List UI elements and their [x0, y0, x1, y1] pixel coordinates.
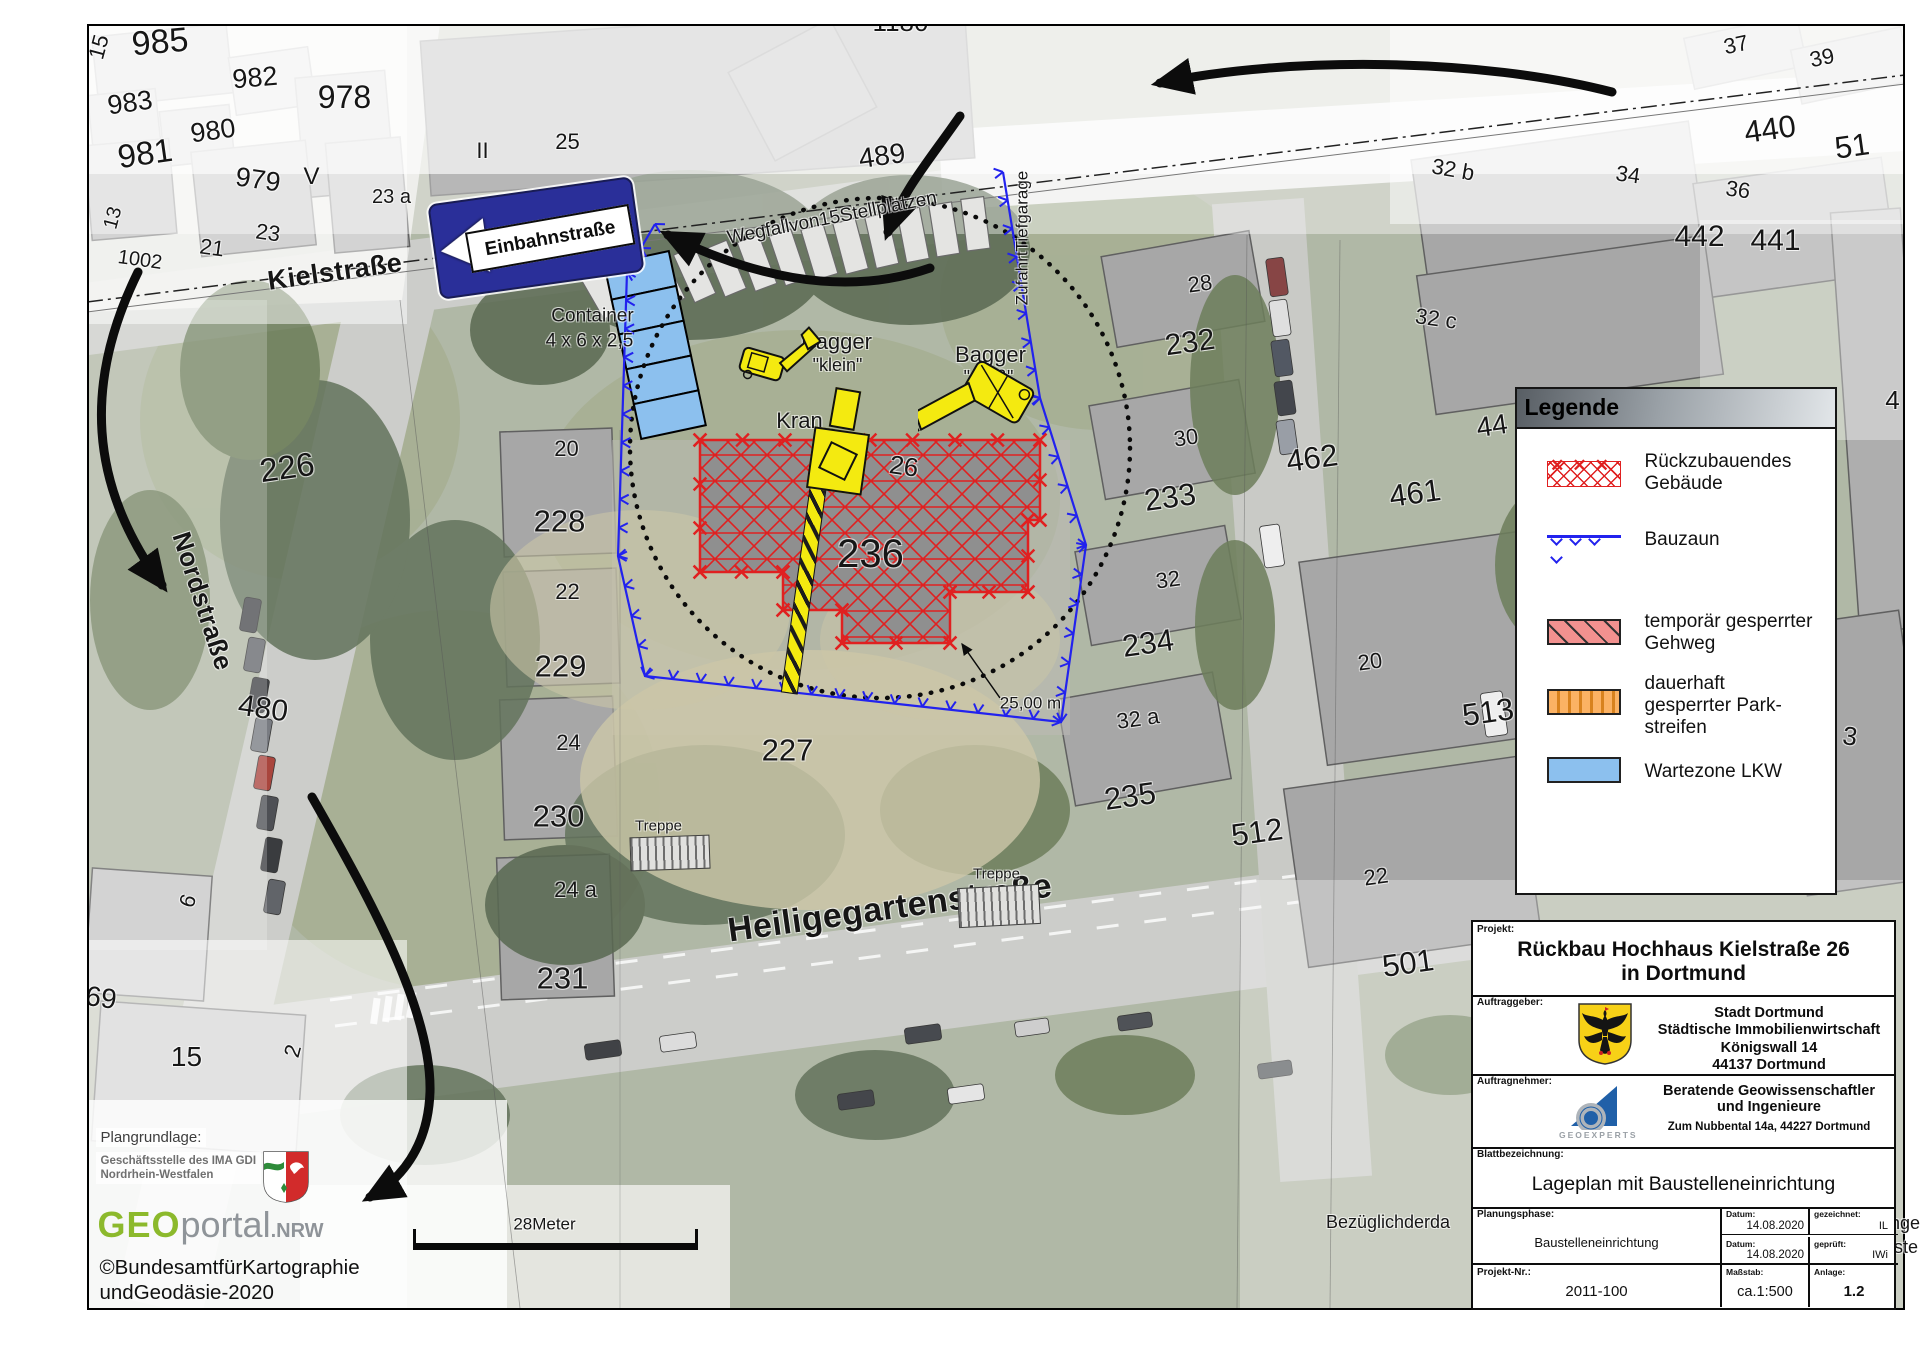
parcel-label: 32	[1154, 567, 1181, 592]
parcel-label: 982	[231, 62, 278, 93]
parcel-label: 440	[1742, 110, 1798, 148]
parcel-label: 13	[100, 204, 125, 231]
parcel-label: 489	[856, 138, 906, 172]
parcel-label: 232	[1163, 324, 1217, 361]
parcel-label: 979	[233, 163, 281, 196]
legend-label-demolition: RückzubauendesGebäude	[1645, 451, 1792, 495]
map-note: Treppe	[973, 866, 1020, 881]
parcel-label: 23 a	[372, 187, 411, 207]
scale-value: ca.1:500	[1722, 1284, 1808, 1300]
geoportal-logo: GEOportal.NRW	[98, 1204, 324, 1246]
sheet-label: Blattbezeichnung:	[1477, 1149, 1564, 1160]
parcel-label: 981	[115, 132, 174, 172]
parcel-label: 985	[130, 24, 189, 61]
parcel-label: 2	[280, 1042, 304, 1060]
crane-base	[805, 426, 869, 495]
parcel-label: 34	[1614, 162, 1641, 187]
parcel-label: 236	[837, 534, 904, 574]
ima-credit-line2: Nordrhein-Westfalen	[101, 1168, 257, 1182]
parcel-label: 513	[1460, 693, 1516, 731]
scale-bar-tick-left	[413, 1229, 416, 1250]
legend-label-walkway: temporär gesperrterGehweg	[1645, 611, 1813, 655]
client-line: Städtische Immobilienwirtschaft	[1648, 1022, 1890, 1039]
parcel-label: 480	[236, 690, 290, 727]
date-value-1: 14.08.2020	[1746, 1220, 1804, 1232]
project-number-label: Projekt-Nr.:	[1477, 1267, 1531, 1278]
parcel-label: 15	[87, 32, 112, 61]
project-number-value: 2011-100	[1473, 1283, 1720, 1300]
parcel-label: 234	[1120, 624, 1176, 662]
client-line: Stadt Dortmund	[1648, 1005, 1890, 1022]
parcel-label: 1002	[116, 247, 163, 273]
ima-credit-line1: Geschäftsstelle des IMA GDI	[101, 1154, 257, 1168]
legend-title: Legende	[1517, 394, 1620, 421]
scale-bar-tick-right	[695, 1229, 698, 1250]
checked-by-label: geprüft:	[1814, 1239, 1846, 1249]
plangrundlage-label: Plangrundlage:	[96, 1128, 207, 1147]
geoportal-logo-geo: GEO	[98, 1204, 181, 1246]
parcel-label: II	[476, 140, 488, 162]
parcel-label: 983	[105, 86, 153, 119]
parcel-label: 20	[1356, 649, 1383, 674]
parcel-label: 15	[171, 1043, 202, 1071]
parcel-label: 441	[1750, 226, 1800, 256]
parcel-label: 20	[554, 438, 578, 460]
parcel-label: 30	[1172, 425, 1199, 450]
legend-label-parking: dauerhaftgesperrter Park-streifen	[1645, 673, 1782, 739]
parcel-label: 980	[188, 114, 236, 147]
map-note: ZufahrtTiefgarage	[1013, 170, 1030, 305]
legend-swatch-demolition: ✕✕✕	[1547, 461, 1621, 487]
scale-label: Maßstab:	[1726, 1267, 1763, 1277]
geoportal-logo-nrw: .NRW	[271, 1220, 324, 1243]
date-label-1: Datum:	[1726, 1209, 1755, 1219]
client-label: Auftraggeber:	[1477, 997, 1543, 1008]
parcel-label: 32 a	[1115, 705, 1160, 733]
map-note: 28Meter	[513, 1215, 575, 1232]
title-block-client-row: Auftraggeber: Stadt Dortmund Städtische …	[1473, 995, 1894, 1076]
crane-base-inner	[817, 440, 857, 480]
parcel-label: 6	[175, 891, 200, 910]
parcel-label: 28	[1186, 271, 1213, 296]
parcel-label: 231	[537, 962, 589, 993]
phase-value: Baustelleneinrichtung	[1473, 1235, 1720, 1250]
geoexperts-logo	[1565, 1082, 1635, 1130]
hidden-note-left: Bezüglichderda	[1326, 1213, 1450, 1231]
contractor-line3: Zum Nubbental 14a, 44227 Dortmund	[1648, 1121, 1890, 1133]
contractor-line2: und Ingenieure	[1648, 1099, 1890, 1115]
map-note: Treppe	[635, 818, 682, 833]
parcel-label: 23	[254, 220, 281, 245]
street-label: Kielstraße	[265, 249, 403, 295]
parcel-label: 21	[198, 235, 225, 260]
parcel-label: 39	[1807, 44, 1836, 71]
parcel-label: 230	[533, 800, 585, 831]
parcel-label: 32 b	[1430, 155, 1476, 184]
date-label-2: Datum:	[1726, 1239, 1755, 1249]
parcel-label: 978	[318, 81, 371, 113]
map-note: 25,00 m	[1000, 694, 1061, 711]
parcel-label: 32 c	[1413, 305, 1457, 333]
legend-swatch-fence	[1547, 535, 1621, 549]
geoportal-logo-portal: portal	[181, 1204, 271, 1246]
parcel-label: 235	[1102, 777, 1158, 815]
parcel-label: 37	[1721, 31, 1750, 58]
legend-header: Legende	[1517, 389, 1835, 429]
parcel-label: 461	[1387, 474, 1443, 512]
parcel-label: 462	[1284, 439, 1340, 477]
drawn-by-value: IL	[1879, 1220, 1888, 1232]
legend: Legende ✕✕✕ RückzubauendesGebäude Bauzau…	[1515, 387, 1837, 895]
parcel-label: 36	[1724, 177, 1751, 202]
title-block-meta-grid: Planungsphase: Baustelleneinrichtung Pro…	[1473, 1207, 1894, 1307]
project-title-line1: Rückbau Hochhaus Kielstraße 26	[1473, 938, 1894, 962]
parcel-label: 44	[1474, 409, 1509, 441]
parcel-label: 228	[534, 505, 586, 536]
parcel-label: 25	[555, 131, 579, 153]
contractor-label: Auftragnehmer:	[1477, 1076, 1552, 1087]
parcel-label: 501	[1380, 944, 1436, 982]
copyright-line2: undGeodäsie-2020	[100, 1281, 274, 1305]
parcel-label: 22	[1362, 864, 1389, 889]
parcel-label: 22	[555, 581, 579, 603]
parcel-label: 24	[556, 732, 580, 754]
parcel-label: 233	[1142, 478, 1198, 516]
sheet-title: Lageplan mit Baustelleneinrichtung	[1473, 1173, 1894, 1196]
site-plan-page: 98515982978983980981979V23 a1323211002II…	[0, 0, 1920, 1356]
checked-by-value: IWi	[1872, 1249, 1888, 1261]
map-note: Wegfallvon15Stellplätzen	[725, 188, 938, 247]
attachment-value: 1.2	[1810, 1283, 1898, 1300]
title-block: Projekt: Rückbau Hochhaus Kielstraße 26 …	[1471, 920, 1896, 1310]
street-label: Nordstraße	[168, 528, 237, 673]
title-block-project-row: Projekt: Rückbau Hochhaus Kielstraße 26 …	[1473, 922, 1894, 997]
scale-bar	[415, 1243, 698, 1250]
phase-label: Planungsphase:	[1477, 1209, 1554, 1220]
legend-swatch-parking	[1547, 689, 1621, 715]
parcel-label: 229	[535, 650, 587, 681]
attachment-label: Anlage:	[1814, 1267, 1845, 1277]
excavator-small-icon	[735, 308, 821, 396]
project-label: Projekt:	[1477, 924, 1514, 935]
parcel-label: 227	[762, 734, 814, 765]
title-block-contractor-row: Auftragnehmer: GEOEXPERTS Beratende Geow…	[1473, 1074, 1894, 1149]
legend-label-fence: Bauzaun	[1645, 529, 1720, 551]
parcel-label: 26	[887, 451, 919, 481]
copyright-line1: ©BundesamtfürKartographie	[100, 1256, 360, 1280]
parcel-label: 226	[257, 446, 316, 486]
parcel-label: 4	[1885, 387, 1899, 413]
geoexperts-logo-text: GEOEXPERTS	[1559, 1130, 1638, 1140]
legend-label-waitzone: Wartezone LKW	[1645, 761, 1783, 783]
parcel-label: V	[303, 165, 319, 189]
date-value-2: 14.08.2020	[1746, 1249, 1804, 1261]
parcel-label: 442	[1674, 222, 1724, 252]
ima-credit: Geschäftsstelle des IMA GDI Nordrhein-We…	[96, 1152, 262, 1185]
parcel-label: 69	[87, 981, 118, 1013]
client-line: Königswall 14	[1648, 1040, 1890, 1057]
stairs-west	[629, 834, 710, 871]
contractor-line1: Beratende Geowissenschaftler	[1648, 1083, 1890, 1099]
parcel-label: 3	[1841, 722, 1859, 750]
parcel-label: 512	[1229, 813, 1285, 851]
legend-swatch-walkway	[1547, 619, 1621, 645]
stairs-east	[957, 883, 1041, 927]
excavator-large-icon	[918, 358, 1038, 518]
dortmund-coat-of-arms	[1577, 1002, 1633, 1066]
legend-swatch-waitzone	[1547, 757, 1621, 783]
map-note: 4 x 6 x 2,5	[546, 331, 634, 350]
parcel-label: 24 a	[554, 879, 597, 901]
map-note: Container	[551, 306, 633, 325]
nrw-coat-of-arms	[262, 1150, 310, 1204]
drawn-by-label: gezeichnet:	[1814, 1209, 1861, 1219]
title-block-sheet-row: Blattbezeichnung: Lageplan mit Baustelle…	[1473, 1147, 1894, 1209]
parcel-label: 1180	[873, 24, 929, 35]
parcel-label: 51	[1832, 128, 1870, 163]
client-line: 44137 Dortmund	[1648, 1057, 1890, 1074]
project-title-line2: in Dortmund	[1473, 962, 1894, 986]
